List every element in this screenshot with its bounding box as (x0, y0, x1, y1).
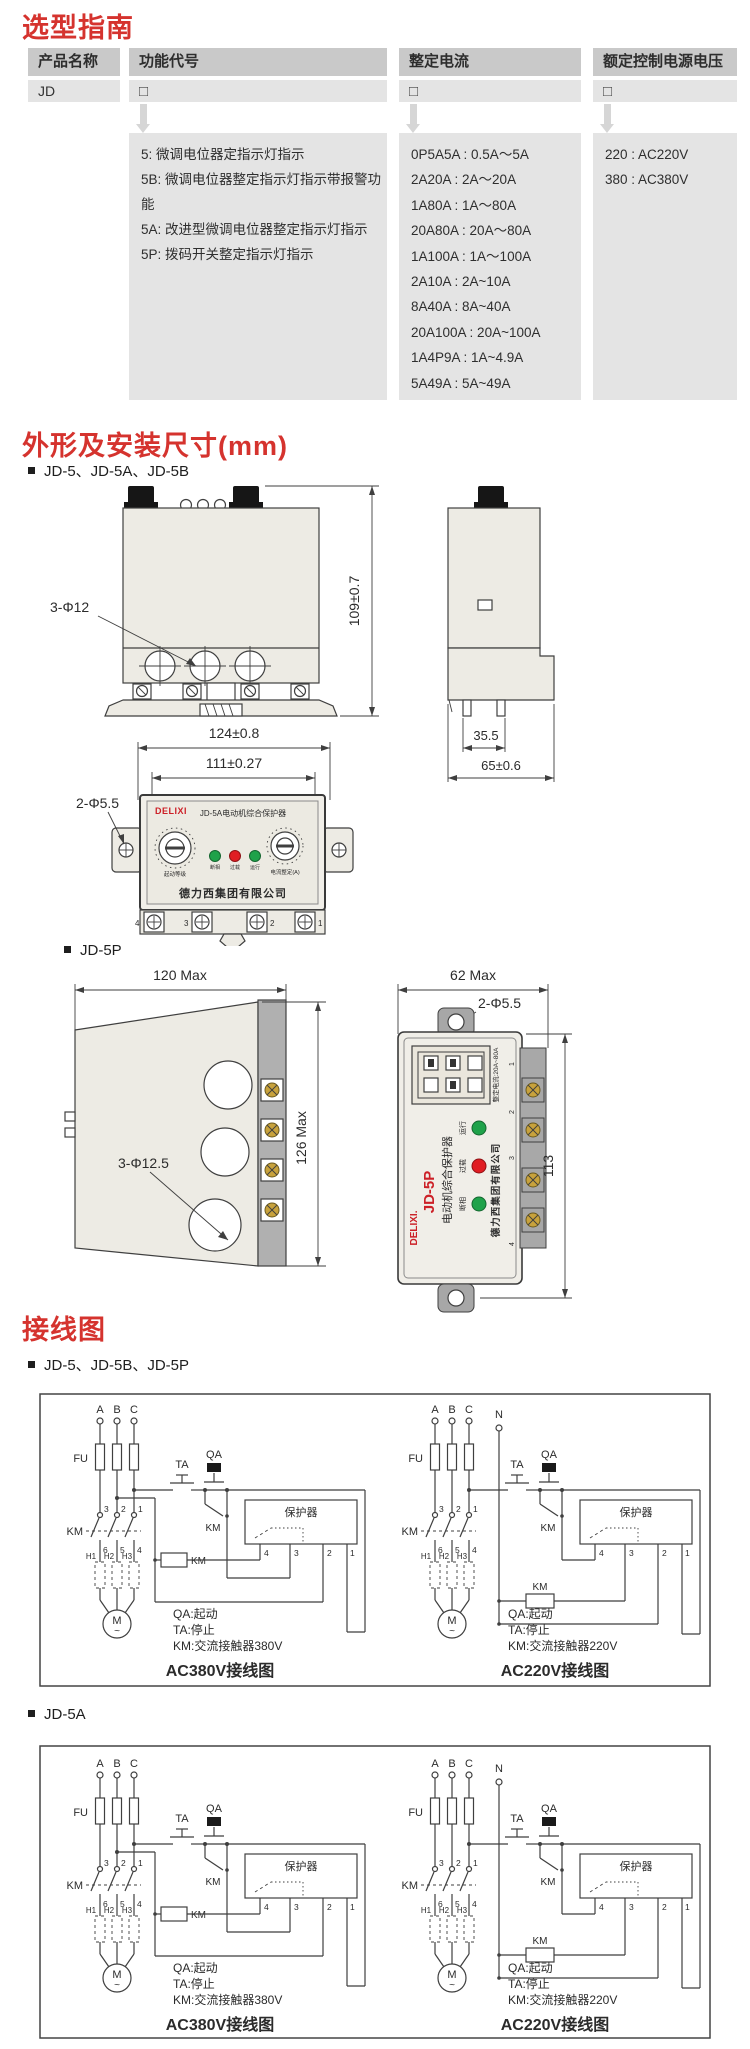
current-setting-item: 5A49A : 5A~49A (411, 371, 577, 396)
function-code-placeholder: □ (129, 80, 387, 102)
panel-title: JD-5A电动机综合保护器 (200, 808, 286, 818)
function-codes-box: 5: 微调电位器定指示灯指示 5B: 微调电位器整定指示灯指示带报警功能 5A:… (129, 133, 387, 400)
side-prong (497, 700, 505, 716)
knob-icon (478, 486, 504, 504)
led-running (250, 851, 261, 862)
company-name: 德力西集团有限公司 (490, 1143, 502, 1238)
circuit-220v (402, 1758, 701, 2034)
ear-hole (448, 1290, 464, 1306)
placeholder-box: □ (409, 83, 418, 100)
ear-hole (448, 1014, 464, 1030)
current-setting-item: 0P5A5A : 0.5A～5A (411, 142, 577, 167)
svg-text:35.5: 35.5 (473, 728, 498, 743)
bullet-square-icon (28, 1710, 35, 1717)
ct-holes (139, 646, 271, 686)
section-title-dimensions: 外形及安装尺寸(mm) (22, 424, 288, 463)
current-setting-item: 2A10A : 2A~10A (411, 269, 577, 294)
ct-hole (204, 1061, 252, 1109)
ct-hole (201, 1128, 249, 1176)
circuit-220v (402, 1404, 701, 1680)
arrow-down-icon (604, 104, 611, 124)
placeholder-box: □ (603, 83, 612, 100)
led-phase-loss (472, 1197, 486, 1211)
svg-text:3-Φ12: 3-Φ12 (50, 599, 89, 615)
bullet-wiring-group2: JD-5A (28, 1706, 86, 1723)
bullet-square-icon (64, 946, 71, 953)
svg-text:2: 2 (509, 1110, 516, 1114)
side-prong (65, 1128, 75, 1137)
svg-text:起动等级: 起动等级 (164, 870, 187, 878)
svg-text:120 Max: 120 Max (153, 967, 207, 983)
dip-switch-block (412, 1046, 490, 1104)
side-prong (65, 1112, 75, 1121)
knob-flange (124, 502, 158, 508)
svg-text:62 Max: 62 Max (450, 967, 496, 983)
current-placeholder: □ (399, 80, 581, 102)
svg-text:124±0.8: 124±0.8 (209, 725, 260, 741)
rail-hook (220, 934, 245, 946)
svg-text:过载: 过载 (230, 864, 240, 871)
arrow-down-icon (410, 104, 417, 124)
svg-text:1: 1 (318, 919, 323, 928)
col-header-product-name: 产品名称 (28, 48, 120, 76)
svg-text:3: 3 (184, 919, 189, 928)
svg-text:2: 2 (270, 919, 275, 928)
svg-text:断相: 断相 (210, 864, 220, 871)
svg-text:126 Max: 126 Max (293, 1111, 309, 1165)
current-setting-item: 20A80A : 20A～80A (411, 218, 577, 243)
dim-rail-inner: 35.5 (463, 718, 505, 752)
svg-text:65±0.6: 65±0.6 (481, 758, 521, 773)
led-overload (472, 1159, 486, 1173)
section-title-selection-guide: 选型指南 (22, 6, 134, 45)
voltage-codes-box: 220 : AC220V 380 : AC380V (593, 133, 737, 400)
device-side-upper (448, 508, 540, 648)
company-name: 德力西集团有限公司 (178, 886, 287, 900)
wiring-box-jd5a (0, 1742, 750, 2042)
ct-hole (189, 1199, 241, 1251)
current-range-label: 整定电流:20A~80A (491, 1047, 500, 1102)
svg-text:113: 113 (540, 1155, 556, 1178)
svg-text:111±0.27: 111±0.27 (206, 755, 262, 771)
side-detail-square (478, 600, 492, 610)
bullet-jd5p: JD-5P (64, 942, 122, 959)
arrow-down-icon (140, 104, 147, 124)
jd5p-dimension-drawing: 120 Max 3-Φ12.5 126 Max (0, 962, 750, 1314)
led-running (472, 1121, 486, 1135)
svg-text:109±0.7: 109±0.7 (346, 576, 362, 627)
wiring-box-jd5 (0, 1390, 750, 1690)
col-header-control-voltage: 额定控制电源电压 (593, 48, 737, 76)
svg-text:过载: 过载 (458, 1159, 467, 1173)
current-setting-item: 8A40A : 8A~40A (411, 294, 577, 319)
led-phase-loss (210, 851, 221, 862)
bullet-square-icon (28, 1361, 35, 1368)
function-code-item: 5B: 微调电位器整定指示灯指示带报警功能 (141, 167, 383, 217)
dim-width-inner: 111±0.27 (152, 755, 315, 800)
placeholder-box: □ (139, 83, 148, 100)
col-header-setting-current: 整定电流 (399, 48, 581, 76)
catalog-page: 选型指南 产品名称 功能代号 整定电流 额定控制电源电压 JD □ □ □ 5:… (0, 0, 750, 2049)
function-code-item: 5A: 改进型微调电位器整定指示灯指示 (141, 217, 383, 242)
brand-logo: DELIXI (155, 806, 187, 816)
current-setting-item: 20A100A : 20A~100A (411, 320, 577, 345)
svg-text:运行: 运行 (458, 1121, 467, 1135)
bullet-wiring-group1: JD-5、JD-5B、JD-5P (28, 1354, 189, 1375)
device-side-lower (448, 648, 554, 700)
rail-tab (200, 704, 242, 716)
current-setting-item: 1A80A : 1A～80A (411, 193, 577, 218)
svg-text:1: 1 (509, 1062, 516, 1066)
product-name-cell: JD (28, 80, 120, 102)
circuit-380v (67, 1404, 366, 1680)
knob-icon (233, 486, 259, 504)
brand-logo: DELIXI. (409, 1210, 420, 1245)
circuit-380v (67, 1758, 366, 2034)
svg-text:3-Φ12.5: 3-Φ12.5 (118, 1155, 169, 1171)
function-code-item: 5P: 拨码开关整定指示灯指示 (141, 242, 383, 267)
voltage-code-item: 380 : AC380V (605, 167, 733, 192)
svg-text:电流整定(A): 电流整定(A) (270, 868, 300, 876)
current-setting-item: 2A20A : 2A～20A (411, 167, 577, 192)
col-header-function-code: 功能代号 (129, 48, 387, 76)
panel-title: 电动机综合保护器 (440, 1136, 454, 1224)
voltage-code-item: 220 : AC220V (605, 142, 733, 167)
side-prong (463, 700, 471, 716)
function-code-item: 5: 微调电位器定指示灯指示 (141, 142, 383, 167)
svg-text:运行: 运行 (250, 864, 260, 871)
bullet-square-icon (28, 467, 35, 474)
jd5-dimension-drawing: 109±0.7 3-Φ12 35.5 65±0.6 (0, 478, 750, 946)
current-setting-item: 1A100A : 1A～100A (411, 244, 577, 269)
svg-text:4: 4 (135, 919, 140, 928)
led-overload (230, 851, 241, 862)
terminal-screws (133, 683, 309, 702)
section-title-wiring: 接线图 (22, 1308, 106, 1347)
knob-flange (229, 502, 263, 508)
svg-text:4: 4 (509, 1242, 516, 1246)
knob-flange (474, 502, 508, 508)
voltage-placeholder: □ (593, 80, 737, 102)
svg-text:断相: 断相 (458, 1197, 467, 1211)
svg-text:2-Φ5.5: 2-Φ5.5 (76, 795, 119, 811)
current-setting-item: 1A4P9A : 1A~4.9A (411, 345, 577, 370)
knob-icon (128, 486, 154, 504)
svg-text:2-Φ5.5: 2-Φ5.5 (478, 995, 521, 1011)
svg-text:3: 3 (509, 1156, 516, 1160)
model-label: JD-5P (421, 1171, 438, 1214)
current-settings-box: 0P5A5A : 0.5A～5A 2A20A : 2A～20A 1A80A : … (399, 133, 581, 400)
